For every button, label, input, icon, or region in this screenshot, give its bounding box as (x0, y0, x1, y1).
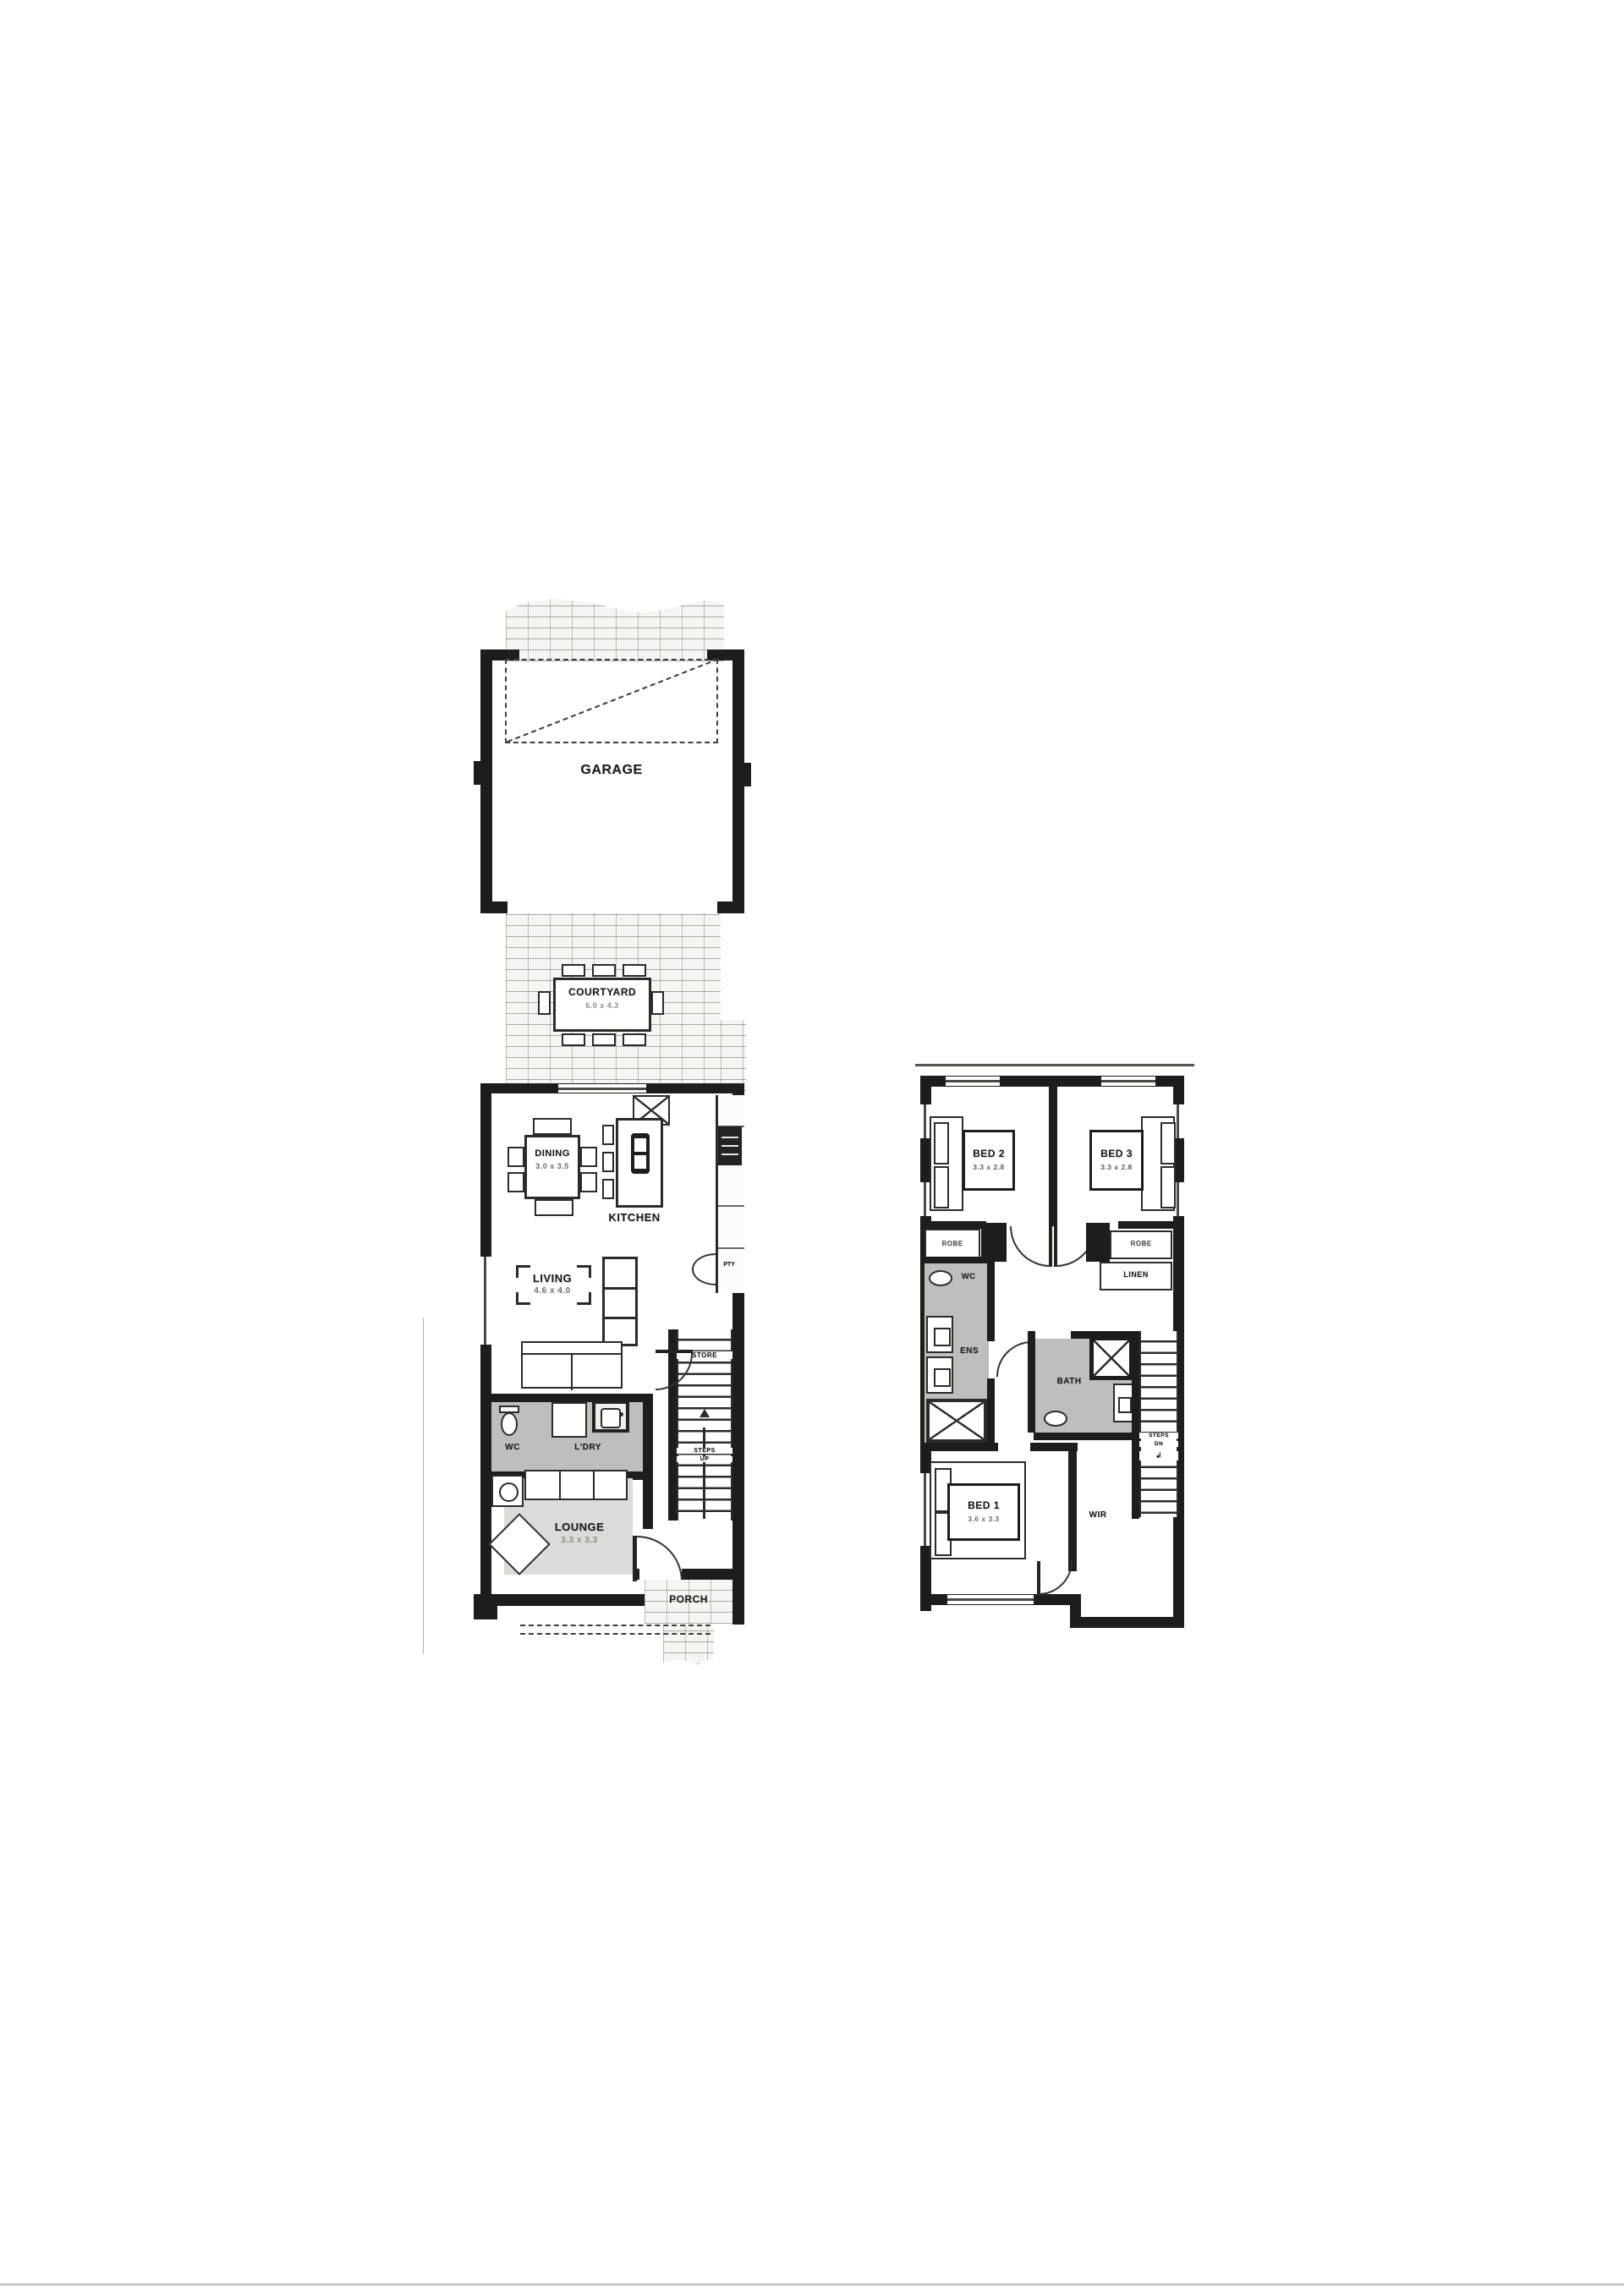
basin (934, 1328, 951, 1346)
courtyard-slider-window (558, 1084, 646, 1093)
garage-wall-left (480, 649, 492, 913)
dining-chair (580, 1147, 597, 1167)
bath-wall-bottom (1034, 1433, 1140, 1440)
label-bracket (577, 1292, 591, 1305)
bench-divider (718, 1247, 744, 1249)
sofa-seat-line (559, 1471, 561, 1499)
bed1-door-swing (1039, 1561, 1073, 1595)
bed2-label: BED 2 (965, 1148, 1012, 1159)
bed1-wall-top (920, 1443, 998, 1451)
lounge-dims: 3.3 x 3.3 (533, 1536, 626, 1545)
steps-dn-label-line2: DN (1139, 1441, 1178, 1447)
ens-wall-right-lower (987, 1378, 995, 1446)
sofa-seat-line (571, 1353, 573, 1390)
bed3-bed (1141, 1116, 1175, 1211)
outdoor-chair (562, 1033, 585, 1046)
pillow (934, 1166, 949, 1208)
bed2-bottom-wall (920, 1221, 986, 1229)
garage-wall-bottom-right (717, 901, 744, 913)
tv-unit-shelf (605, 1287, 635, 1290)
dining-chair (535, 1199, 573, 1216)
trough-bowl (601, 1408, 621, 1428)
bath-wall-left (1028, 1339, 1035, 1433)
outdoor-chair (592, 1033, 616, 1046)
outdoor-chair (623, 964, 646, 977)
tv-unit-shelf (605, 1317, 635, 1319)
front-boundary-dashes (520, 1625, 710, 1626)
bed3-label: BED 3 (1092, 1148, 1141, 1159)
outdoor-chair (562, 964, 585, 977)
bedroom-divider-wall (1049, 1076, 1057, 1226)
ens-door-swing (996, 1341, 1032, 1377)
entry-door-swing (637, 1536, 683, 1581)
living-window (480, 1257, 491, 1345)
bed1-label: BED 1 (950, 1499, 1018, 1511)
pillow (934, 1122, 949, 1164)
bath-shower (1089, 1336, 1133, 1380)
kitchen-stool (602, 1125, 614, 1145)
label-bracket (516, 1292, 530, 1305)
robe-left-label: ROBE (924, 1240, 980, 1247)
garage-label: GARAGE (535, 763, 688, 778)
oven-line (721, 1145, 738, 1147)
house-wall-left (480, 1083, 491, 1609)
wc-wall-top (920, 1257, 988, 1263)
wc-toilet (929, 1270, 952, 1286)
bed1-bottom-window (947, 1595, 1034, 1604)
basin (934, 1368, 951, 1387)
pantry-label: PTY (716, 1262, 743, 1268)
laundry-label: L'DRY (550, 1443, 626, 1452)
pantry-bifold-door (692, 1269, 716, 1285)
ens-label: ENS (951, 1346, 988, 1356)
ens-wall-right (987, 1257, 995, 1341)
steps-return-arrow-icon: ↲ (1139, 1451, 1178, 1460)
living-sofa (521, 1341, 623, 1389)
sofa-seat-line (593, 1471, 595, 1499)
lamp-circle (499, 1482, 518, 1502)
basin (1118, 1397, 1132, 1413)
bed1-dims: 3.6 x 3.3 (950, 1515, 1018, 1523)
lounge-corner-table (491, 1475, 524, 1507)
outdoor-chair (538, 991, 551, 1015)
bed3-top-window (1101, 1077, 1155, 1086)
house-corner-pier (474, 1594, 497, 1619)
label-bracket (516, 1265, 530, 1278)
bed3-bottom-wall (1118, 1221, 1184, 1229)
laundry-trough (592, 1400, 629, 1433)
kitchen-stool (602, 1152, 614, 1172)
toilet-pan (501, 1412, 518, 1436)
bed2-top-window (946, 1077, 1000, 1086)
garage-wall-right (732, 649, 744, 913)
dining-label: DINING (524, 1148, 580, 1159)
pillow (1160, 1166, 1176, 1208)
island-sink (631, 1133, 650, 1174)
garage-pier-right (744, 763, 751, 786)
steps-up-label-line2: UP (677, 1456, 732, 1462)
bed2-dims: 3.3 x 2.8 (965, 1163, 1012, 1171)
ens-vanity (926, 1316, 953, 1353)
eave-line (915, 1064, 1194, 1066)
lounge-label: LOUNGE (533, 1521, 626, 1533)
driveway-paving (506, 599, 724, 661)
ff-wall-bottom-right (1070, 1617, 1184, 1628)
bed3-dims: 3.3 x 2.8 (1092, 1163, 1141, 1171)
bath-vanity (1113, 1384, 1133, 1422)
front-boundary-dashes (520, 1633, 710, 1635)
tv-unit (602, 1257, 638, 1346)
wc-label-ff: WC (952, 1272, 985, 1281)
linen-label: LINEN (1100, 1270, 1172, 1279)
pantry-bifold-door (692, 1253, 716, 1269)
hall-divider-wall (643, 1394, 653, 1529)
kitchen-label: KITCHEN (584, 1211, 685, 1224)
stairs-up-arrow (700, 1409, 710, 1417)
sink-bowl (634, 1138, 646, 1152)
courtyard-dims: 6.0 x 4.3 (553, 1001, 651, 1010)
label-bracket (577, 1265, 591, 1278)
dining-dims: 3.0 x 3.5 (524, 1162, 580, 1170)
washing-machine (551, 1402, 587, 1438)
dining-chair (507, 1172, 524, 1192)
bed2-label-box: BED 2 3.3 x 2.8 (963, 1130, 1015, 1191)
dining-chair (507, 1147, 524, 1167)
outdoor-chair (651, 991, 664, 1015)
bath-wall-top-left (1028, 1331, 1035, 1339)
garage-pier-left (474, 761, 480, 785)
pillow (1160, 1122, 1176, 1164)
bed2-door-swing (1010, 1226, 1051, 1267)
courtyard-label: COURTYARD (553, 986, 651, 998)
outdoor-chair (592, 964, 616, 977)
trough-tap (619, 1412, 623, 1417)
porch-step (663, 1625, 714, 1664)
stairs-wall-left-ff (1132, 1331, 1139, 1519)
staircase-down (1139, 1331, 1178, 1517)
front-wall-right-segment (682, 1569, 732, 1580)
stair-rail-line (703, 1427, 705, 1519)
dining-chair (580, 1172, 597, 1192)
oven-line (721, 1153, 738, 1155)
lounge-sofa (524, 1470, 628, 1500)
bed3-label-box: BED 3 3.3 x 2.8 (1089, 1130, 1144, 1191)
kitchen-stool (602, 1179, 614, 1199)
ens-shower (926, 1399, 987, 1443)
steps-dn-label-line1: STEPS (1139, 1433, 1178, 1438)
bench-divider (718, 1205, 744, 1207)
robe-right-label: ROBE (1110, 1240, 1172, 1247)
oven-line (721, 1137, 738, 1138)
courtyard-paving-extension (721, 1020, 746, 1091)
robe-wall-block (1086, 1223, 1110, 1262)
ens-vanity (926, 1356, 953, 1394)
wir-wall-left (1068, 1443, 1077, 1571)
garage-wall-bottom-left (480, 901, 507, 913)
oven-tower (718, 1126, 742, 1165)
sink-bowl (634, 1155, 646, 1169)
house-wall-bottom-left (474, 1594, 656, 1606)
bed2-bed (930, 1116, 963, 1211)
steps-up-label-line1: STEPS (677, 1448, 732, 1454)
dining-chair (533, 1118, 572, 1135)
floor-plan-page: GARAGE COURTYARD 6.0 x 4.3 (0, 0, 1624, 2296)
bath-label: BATH (1042, 1377, 1096, 1386)
scan-vertical-line (423, 1318, 424, 1654)
bath-toilet (1044, 1411, 1067, 1427)
outdoor-chair (623, 1033, 646, 1046)
wir-label: WIR (1073, 1510, 1123, 1520)
porch-label: PORCH (648, 1593, 729, 1605)
wc-label-gf: WC (494, 1443, 531, 1452)
page-bottom-edge-line (0, 2283, 1624, 2286)
bed1-label-box: BED 1 3.6 x 3.3 (947, 1483, 1020, 1541)
